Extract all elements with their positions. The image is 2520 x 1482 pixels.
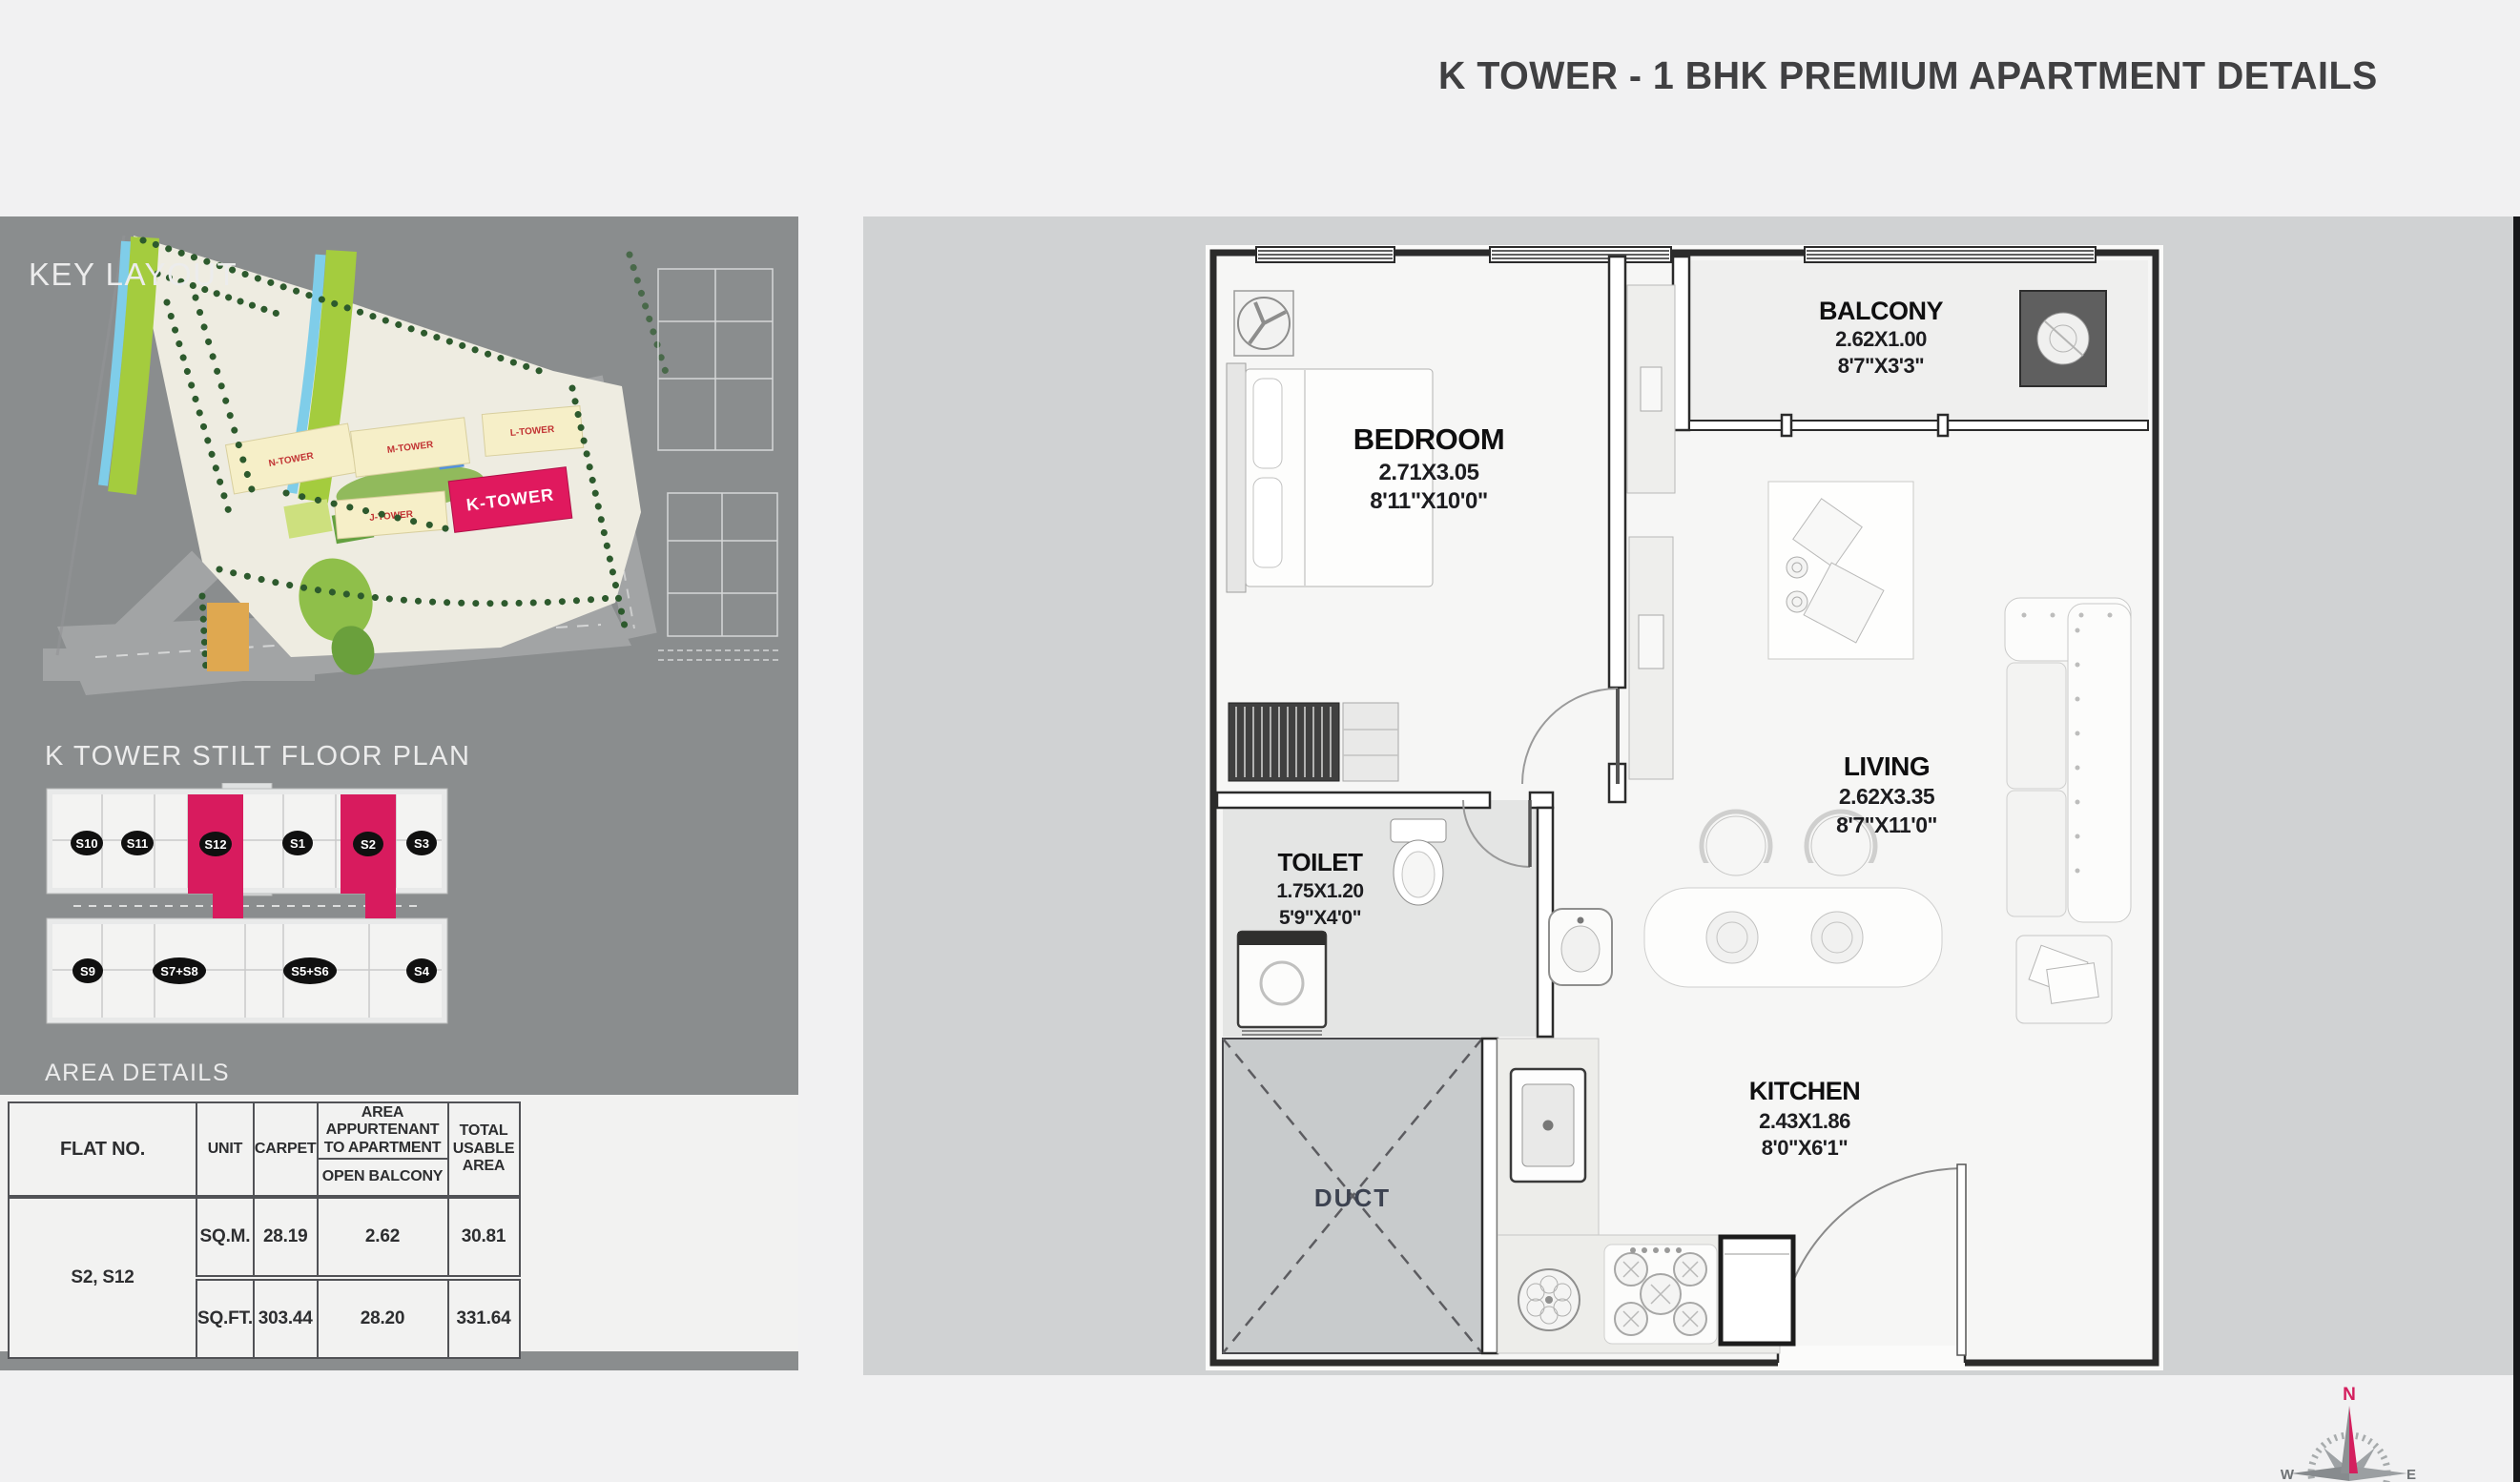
page-title: K TOWER - 1 BHK PREMIUM APARTMENT DETAIL… [1438, 53, 2409, 98]
unit-sqm: SQ.M. [196, 1197, 254, 1278]
wardrobe [1229, 703, 1398, 781]
key-layout-map: N-TOWER M-TOWER L-TOWER J-TOWER K-TOWER [0, 216, 798, 736]
grinder-plate [1518, 1269, 1580, 1330]
compass-east-label: E [2406, 1467, 2416, 1482]
svg-text:2.71X3.05: 2.71X3.05 [1379, 460, 1479, 485]
compass-north-label: N [2343, 1385, 2356, 1405]
ceiling-fan-icon [1234, 291, 1293, 356]
unit-badge-s10: S10 [75, 836, 97, 851]
window-edge-line [2513, 216, 2520, 1482]
kitchen-sink [1511, 1069, 1585, 1182]
living-label: LIVING 2.62X3.35 8'7"X11'0" [1836, 751, 1937, 837]
svg-text:8'7"X11'0": 8'7"X11'0" [1836, 813, 1937, 837]
svg-text:1.75X1.20: 1.75X1.20 [1276, 880, 1363, 902]
toilet-label: TOILET 1.75X1.20 5'9"X4'0" [1276, 848, 1363, 929]
stilt-floor-plan: S10 S11 S12 S1 S2 S3 S9 S7+S8 S5+S6 S4 [45, 783, 450, 1029]
kitchen-label: KITCHEN 2.43X1.86 8'0"X6'1" [1749, 1077, 1861, 1160]
col-header-unit: UNIT [196, 1102, 254, 1197]
duct-shaft: DUCT [1223, 1039, 1498, 1353]
col-header-total-usable: TOTAL USABLE AREA [448, 1102, 520, 1197]
svg-text:2.62X1.00: 2.62X1.00 [1835, 327, 1927, 351]
stilt-heading: K TOWER STILT FLOOR PLAN [45, 741, 470, 772]
washbasin [1549, 909, 1612, 985]
compass-west-label: W [2281, 1467, 2295, 1482]
balcony-planter [2020, 291, 2106, 386]
unit-badge-s3: S3 [414, 836, 429, 851]
key-layout-heading: KEY LAYOUT [29, 257, 238, 293]
coffee-table [1768, 482, 1913, 659]
svg-text:BALCONY: BALCONY [1819, 297, 1943, 325]
gas-stove [1604, 1245, 1717, 1344]
svg-text:TOILET: TOILET [1278, 848, 1364, 876]
unit-sqft: SQ.FT. [196, 1278, 254, 1358]
area-details-card: FLAT NO. UNIT CARPET AREA APPURTENANT TO… [0, 1095, 798, 1351]
side-table [2016, 936, 2112, 1023]
unit-badge-s2: S2 [361, 837, 376, 852]
unit-badge-s1: S1 [290, 836, 305, 851]
right-panel: DUCT [863, 216, 2520, 1375]
balcony-sqft: 28.20 [318, 1278, 448, 1358]
svg-text:2.62X3.35: 2.62X3.35 [1839, 784, 1935, 809]
washing-machine [1238, 932, 1326, 1035]
duct-label: DUCT [1314, 1184, 1391, 1212]
svg-text:8'0"X6'1": 8'0"X6'1" [1762, 1136, 1848, 1160]
unit-badge-s12: S12 [204, 837, 226, 852]
flat-no-value: S2, S12 [9, 1197, 196, 1358]
svg-text:BEDROOM: BEDROOM [1353, 422, 1504, 456]
floor-plan-sheet: { "title": "K TOWER - 1 BHK PREMIUM APAR… [0, 0, 2520, 1482]
site-orange-block [207, 603, 249, 671]
refrigerator [1721, 1237, 1793, 1344]
svg-text:8'7"X3'3": 8'7"X3'3" [1838, 354, 1924, 378]
svg-text:KITCHEN: KITCHEN [1749, 1077, 1861, 1105]
unit-badge-s5s6: S5+S6 [291, 964, 328, 978]
area-details-table: FLAT NO. UNIT CARPET AREA APPURTENANT TO… [8, 1101, 521, 1359]
total-sqm: 30.81 [448, 1197, 520, 1278]
table-row-sqm: S2, S12 SQ.M. 28.19 2.62 30.81 [9, 1197, 520, 1278]
col-header-flat-no: FLAT NO. [9, 1102, 196, 1197]
carpet-sqft: 303.44 [254, 1278, 318, 1358]
svg-text:LIVING: LIVING [1844, 751, 1930, 781]
balcony-sqm: 2.62 [318, 1197, 448, 1278]
col-header-carpet: CARPET [254, 1102, 318, 1197]
svg-text:8'11"X10'0": 8'11"X10'0" [1370, 488, 1487, 514]
unit-badge-s9: S9 [80, 964, 95, 978]
area-details-heading: AREA DETAILS [45, 1060, 230, 1087]
unit-badge-s11: S11 [127, 836, 148, 851]
unit-badge-s4: S4 [414, 964, 430, 978]
svg-text:2.43X1.86: 2.43X1.86 [1759, 1109, 1850, 1133]
col-header-area-appurtenant: AREA APPURTENANT TO APARTMENT [318, 1102, 448, 1159]
wc [1391, 819, 1446, 905]
total-sqft: 331.64 [448, 1278, 520, 1358]
unit-badge-s7s8: S7+S8 [160, 964, 197, 978]
sofa [2005, 598, 2131, 922]
compass-rose: N W E [2278, 1381, 2421, 1482]
col-header-open-balcony: OPEN BALCONY [318, 1159, 448, 1197]
apartment-floor-plan: DUCT [1206, 245, 2163, 1370]
carpet-sqm: 28.19 [254, 1197, 318, 1278]
svg-text:5'9"X4'0": 5'9"X4'0" [1279, 907, 1361, 929]
left-panel: N-TOWER M-TOWER L-TOWER J-TOWER K-TOWER … [0, 216, 798, 1370]
adjacent-building-outlines [658, 269, 782, 660]
